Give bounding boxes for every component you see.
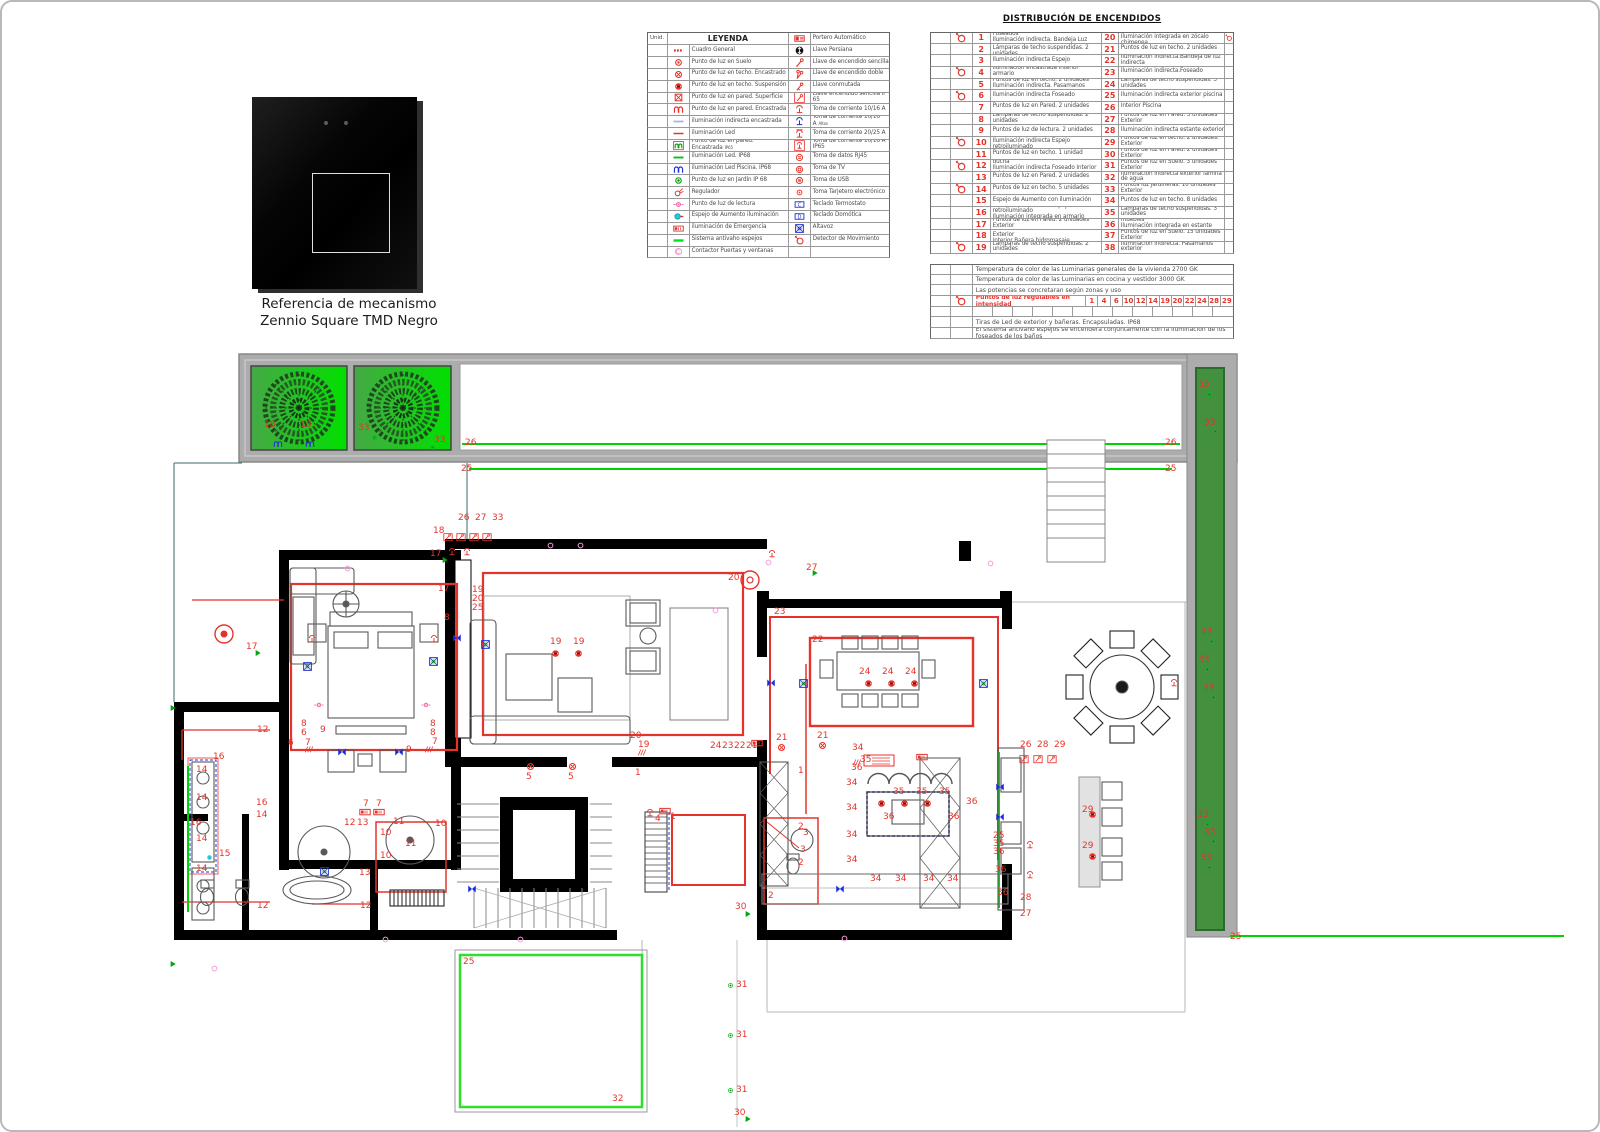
det-icon: [955, 296, 967, 306]
det-icon: [955, 67, 967, 78]
caption-line1: Referencia de mecanismo: [219, 296, 479, 313]
legend-row: Punto de luz en techo. EncastradoLlave d…: [647, 69, 890, 81]
suelo-icon: [673, 57, 684, 68]
toma65-icon: [794, 140, 805, 151]
distribution-row: 14Puntos de luz en techo. 5 unidades33Pu…: [930, 184, 1234, 196]
contactor-icon: [673, 247, 684, 258]
legend-row: Contactor Puertas y ventanas: [647, 247, 890, 259]
stairs: [457, 440, 1105, 928]
notes-row: Tiras de Led de exterior y bañeras. Enca…: [930, 317, 1234, 328]
det-icon: [955, 242, 967, 253]
legend-row: Punto de luz en pared. SuperficieLlave e…: [647, 93, 890, 105]
persiana-icon: [794, 45, 805, 56]
distribution-row: 16Iluminación indirecta Espejo retroilum…: [930, 207, 1234, 219]
notes-row: El sistema antivaho espejos se encendera…: [930, 328, 1234, 339]
legend-row: iluminación indirecta encastradaToma de …: [647, 116, 890, 128]
toma-icon: [794, 104, 805, 115]
walls: [174, 539, 1012, 940]
toma2025-icon: [794, 128, 805, 139]
device-caption: Referencia de mecanismo Zennio Square TM…: [219, 296, 479, 330]
zennio-device-photo: [252, 97, 417, 289]
legend-row: ReguladorToma Tarjetero electrónico: [647, 187, 890, 199]
notes-row: Temperatura de color de las Luminarias e…: [930, 275, 1234, 286]
distribution-row: 3Iluminación indirecta Espejo22Iluminaci…: [930, 55, 1234, 67]
portero-icon: [794, 33, 805, 44]
pared65-icon: [673, 140, 684, 151]
distribution-table: 1Iluminación indirecta 2 Tramos Foseados…: [930, 32, 1234, 254]
distribution-row: 2Iluminación indirecta FoseadoLámparas d…: [930, 44, 1234, 56]
distribution-row: 15Espejo de Aumento con iluminación34Pun…: [930, 195, 1234, 207]
conmutada-icon: [794, 81, 805, 92]
led-icon: [673, 128, 684, 139]
legend-row: Punto de luz en pared. EncastradaIP65Tom…: [647, 140, 890, 152]
distribution-row: 12Iluminación indirecta Foseado Bañera, …: [930, 160, 1234, 172]
distribution-title: DISTRIBUCIÓN DE ENCENDIDOS: [930, 14, 1234, 24]
notes-row: Las potencias se concretaran según zonas…: [930, 285, 1234, 296]
techo-icon: [673, 69, 684, 80]
regulador-icon: [673, 187, 684, 198]
det-icon: [955, 33, 967, 43]
drawing-sheet: Referencia de mecanismo Zennio Square TM…: [0, 0, 1600, 1132]
legend-row: iluminación Led. IP68Toma de datos RJ45: [647, 152, 890, 164]
legend-row: Punto de luz en techo. SuspensiónLlave c…: [647, 81, 890, 93]
usb-icon: [794, 175, 805, 186]
rj45-icon: [794, 152, 805, 163]
distribution-row: 9Puntos de luz de lectura. 2 unidades28I…: [930, 125, 1234, 137]
distribution-row: 5Puntos de luz en techo. 2 unidadesIlumi…: [930, 79, 1234, 91]
svg-text:C: C: [798, 202, 802, 208]
distribution-row: 18Puntos de luz en Pared. 2 unidades Ext…: [930, 230, 1234, 242]
termC-icon: C: [794, 199, 805, 210]
llave2-icon: [794, 69, 805, 80]
legend-row: Espejo de Aumento iluminaciónDTeclado Do…: [647, 211, 890, 223]
notes-table: Temperatura de color de las Luminarias g…: [930, 264, 1234, 339]
distribution-row: 8Lámparas de techo suspendidas. 2 unidad…: [930, 114, 1234, 126]
cuadro-icon: [673, 45, 684, 56]
led68-icon: [673, 152, 684, 163]
distribution-row: 7Puntos de luz en Pared. 2 unidades26Int…: [930, 102, 1234, 114]
svg-text:D: D: [797, 214, 801, 220]
indirecta-icon: [673, 116, 684, 127]
distribution-row: 10Iluminación indirecta FoseadoIluminaci…: [930, 137, 1234, 149]
red-circuit-outlines: [182, 571, 998, 904]
distribution-row: 11Puntos de luz en techo. 1 unidad30Punt…: [930, 149, 1234, 161]
jardin-icon: [673, 175, 684, 186]
legend-row: Cuadro GeneralLlave Persiana: [647, 45, 890, 57]
lectura-icon: [673, 199, 684, 210]
notes-row: [930, 307, 1234, 318]
tarj-icon: [794, 187, 805, 198]
distribution-row: 6Iluminación indirecta Foseado25Iluminac…: [930, 90, 1234, 102]
paredenc-icon: [673, 104, 684, 115]
det-icon: [955, 90, 967, 101]
notes-row: Puntos de luz regulables en intensidad14…: [930, 296, 1234, 307]
paredsup-icon: [673, 93, 684, 104]
blue-dashed-elements: [190, 760, 1008, 892]
det-icon: [1225, 34, 1233, 42]
det-icon: [794, 235, 805, 246]
notes-row: Temperatura de color de las Luminarias g…: [930, 264, 1234, 275]
device-led-dot: [324, 121, 328, 125]
legend-row: Punto de luz de lecturaCTeclado Termosta…: [647, 199, 890, 211]
legend-row: iluminación LedToma de corriente 20/25 A: [647, 128, 890, 140]
distribution-row: 4Iluminación encastrada Interior armario…: [930, 67, 1234, 79]
tomaAltos-icon: [794, 116, 805, 127]
distribution-row: 13Puntos de luz en Pared. 2 unidades32Il…: [930, 172, 1234, 184]
legend-row: Sistema antivaho espejosDetector de Movi…: [647, 235, 890, 247]
llave65-icon: [794, 93, 805, 104]
susp-icon: [673, 81, 684, 92]
legend-row: iluminación de EmergenciaAltavoz: [647, 223, 890, 235]
det-icon: [955, 160, 967, 171]
distribution-row: 17Puntos de luz en Pared. 2 unidades Ext…: [930, 219, 1234, 231]
det-icon: [955, 184, 967, 195]
legend-table: Unid.LEYENDAPortero AutomáticoCuadro Gen…: [647, 32, 890, 258]
legend-row: Punto de luz en SueloLlave de encendido …: [647, 57, 890, 69]
legend-row: iluminación Led Piscina. IP68Toma de TV: [647, 164, 890, 176]
legend-row: Unid.LEYENDAPortero Automático: [647, 32, 890, 45]
device-led-dot: [344, 121, 348, 125]
caption-line2: Zennio Square TMD Negro: [219, 313, 479, 330]
distribution-row: 19Lámparas de techo suspendidas. 2 unida…: [930, 242, 1234, 254]
distribution-row: 1Iluminación indirecta 2 Tramos Foseados…: [930, 32, 1234, 44]
device-touch-square: [312, 173, 390, 253]
property-line: [174, 463, 467, 702]
llave1-icon: [794, 57, 805, 68]
det-icon: [955, 137, 967, 148]
right-planter-strip: [1187, 354, 1564, 937]
altavoz-icon: [794, 223, 805, 234]
emerg-icon: [673, 223, 684, 234]
tv-icon: [794, 164, 805, 175]
legend-row: Punto de luz en pared. EncastradaToma de…: [647, 104, 890, 116]
legend-row: Punto de luz en Jardín IP 68Toma de USB: [647, 175, 890, 187]
ledpisc-icon: [673, 164, 684, 175]
espejo-icon: [673, 211, 684, 222]
antivaho-icon: [673, 235, 684, 246]
termD-icon: D: [794, 211, 805, 222]
